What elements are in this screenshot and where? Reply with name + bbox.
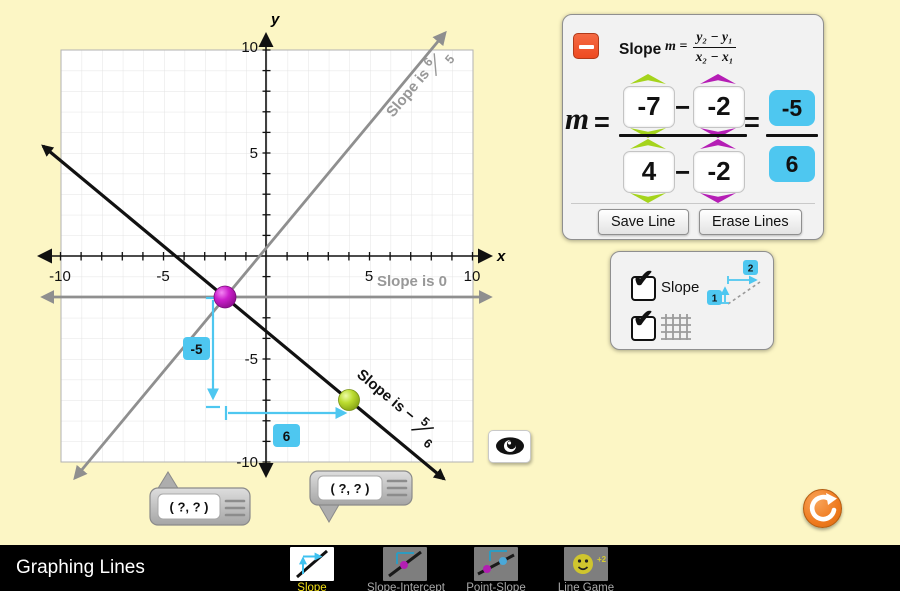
point-tool-2[interactable]: ( ?, ? ) [310,471,412,522]
numerator-minus: − [675,92,690,123]
slope-denominator-box: 6 [769,146,815,182]
y2-increment-arrow[interactable] [630,74,666,84]
x2-value-box[interactable]: 4 [623,151,675,193]
point-x2y2-manipulator[interactable] [339,390,360,411]
denominator-minus: − [675,157,690,188]
x1-decrement-arrow[interactable] [700,193,736,203]
graph-area: x y -10 -5 5 10 10 5 -5 -10 Slope is 6 5… [0,0,545,545]
reset-arrow-icon [804,490,841,527]
options-panel: ✔ Slope 2 1 ✔ [610,251,774,350]
svg-text:-5: -5 [156,268,169,285]
x1-increment-arrow[interactable] [700,139,736,149]
svg-text:1: 1 [712,294,718,305]
point-slope-screen-thumbnail [474,547,518,581]
svg-text:2: 2 [748,264,754,275]
svg-text:-10: -10 [49,268,71,285]
x2-decrement-arrow[interactable] [630,193,666,203]
tab-slope-intercept[interactable]: Slope-Intercept [355,547,457,591]
tab-label: Slope-Intercept [355,582,457,591]
graphing-lines-simulation: x y -10 -5 5 10 10 5 -5 -10 Slope is 6 5… [0,0,900,591]
slope-screen-thumbnail [290,547,334,581]
tab-line-game[interactable]: +2 Line Game [542,547,630,591]
reset-all-button[interactable] [803,489,842,528]
erase-lines-button[interactable]: Erase Lines [699,209,802,235]
checkmark-icon: ✔ [633,307,654,332]
sim-title: Graphing Lines [16,557,145,579]
point-x1y1-manipulator[interactable] [214,286,236,308]
y1-value-box[interactable]: -2 [693,86,745,128]
slope-equation-panel: Slope m = y₂ − y₁ x₂ − x₁ m = -7 − -2 4 … [562,14,824,240]
slope-checkbox[interactable]: ✔ [631,276,656,301]
svg-text:-5: -5 [190,342,202,357]
slope-intercept-screen-thumbnail [383,547,427,581]
rise-badge: -5 [183,337,210,360]
tab-label: Slope [284,582,340,591]
tab-label: Point-Slope [452,582,540,591]
y2-value-box[interactable]: -7 [623,86,675,128]
tab-label: Line Game [542,582,630,591]
y1-increment-arrow[interactable] [700,74,736,84]
navigation-bar: Graphing Lines Slope [0,545,900,591]
slope-checkbox-label: Slope [661,279,699,296]
slope-tool-icon: 2 1 [707,258,767,310]
y-axis-label: y [270,11,280,28]
svg-text:5: 5 [365,268,373,285]
collapse-button[interactable] [573,33,599,59]
svg-text:-5: -5 [245,351,258,368]
run-badge: 6 [273,424,300,447]
svg-text:( ?, ? ): ( ?, ? ) [170,500,209,515]
save-line-button[interactable]: Save Line [598,209,689,235]
line-game-screen-thumbnail: +2 [564,547,608,581]
fraction-bar [619,134,747,137]
minus-icon [579,45,594,49]
x2-increment-arrow[interactable] [630,139,666,149]
tab-point-slope[interactable]: Point-Slope [452,547,540,591]
svg-text:10: 10 [241,39,258,56]
equation-m: m [565,101,589,137]
result-fraction-bar [766,134,818,137]
svg-text:-10: -10 [236,454,258,471]
svg-text:6: 6 [283,429,291,444]
grid-checkbox[interactable]: ✔ [631,316,656,341]
slope-general-formula: m = y₂ − y₁ x₂ − x₁ [665,29,736,66]
svg-text:5: 5 [250,145,258,162]
svg-text:10: 10 [464,268,481,285]
equation-equals: = [594,107,610,138]
tab-slope[interactable]: Slope [284,547,340,591]
grid-icon [659,312,693,342]
result-equals: = [744,107,760,138]
saved-line-slope-0-label: Slope is 0 [377,273,447,290]
x1-value-box[interactable]: -2 [693,151,745,193]
checkmark-icon: ✔ [633,267,654,292]
panel-separator [571,203,815,204]
point-tool-1[interactable]: ( ?, ? ) [150,472,250,525]
svg-text:( ?, ? ): ( ?, ? ) [331,481,370,496]
slope-numerator-box: -5 [769,90,815,126]
hide-lines-button[interactable] [488,430,531,463]
game-badge: +2 [597,555,607,564]
panel-title: Slope [619,41,661,59]
eye-icon [493,434,527,458]
x-axis-label: x [496,248,506,265]
